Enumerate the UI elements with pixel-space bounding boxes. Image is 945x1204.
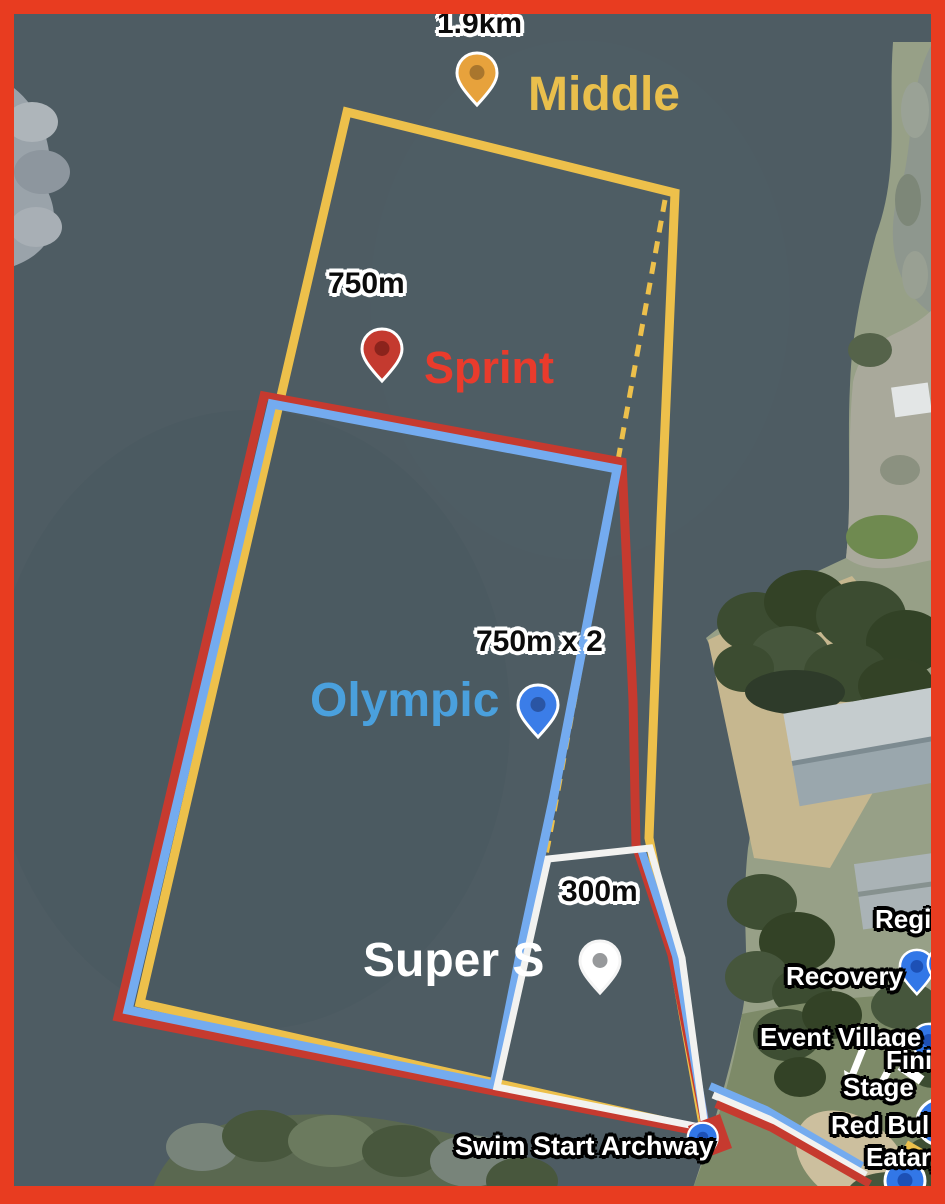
course-map: 1.9km Middle 750m Sprint 750m x 2 Olympi… — [0, 0, 945, 1204]
map-border-right — [931, 0, 945, 1204]
middle-course-label: Middle — [528, 70, 680, 120]
finish-label: Fini — [886, 1047, 932, 1074]
white-building — [891, 383, 932, 418]
trees — [895, 174, 921, 226]
red-bull-label: Red Bull — [831, 1112, 936, 1139]
grass-patch — [846, 515, 918, 559]
sprint-distance-label: 750m — [328, 268, 405, 300]
map-border-left — [0, 0, 14, 1204]
trees — [848, 333, 892, 367]
olympic-distance-label: 750m x 2 — [476, 626, 603, 658]
map-border-top — [0, 0, 945, 14]
trees — [902, 251, 928, 299]
swim-start-label: Swim Start Archway — [455, 1132, 714, 1160]
map-border-bottom — [0, 1186, 945, 1204]
trees — [901, 82, 929, 138]
sprint-course-label: Sprint — [424, 344, 554, 391]
recovery-label: Recovery — [786, 963, 903, 990]
trees — [880, 455, 920, 485]
super-sprint-course-label: Super S — [363, 936, 544, 986]
super-sprint-distance-label: 300m — [561, 876, 638, 908]
stage-label: Stage — [843, 1074, 914, 1101]
olympic-course-label: Olympic — [310, 676, 499, 726]
